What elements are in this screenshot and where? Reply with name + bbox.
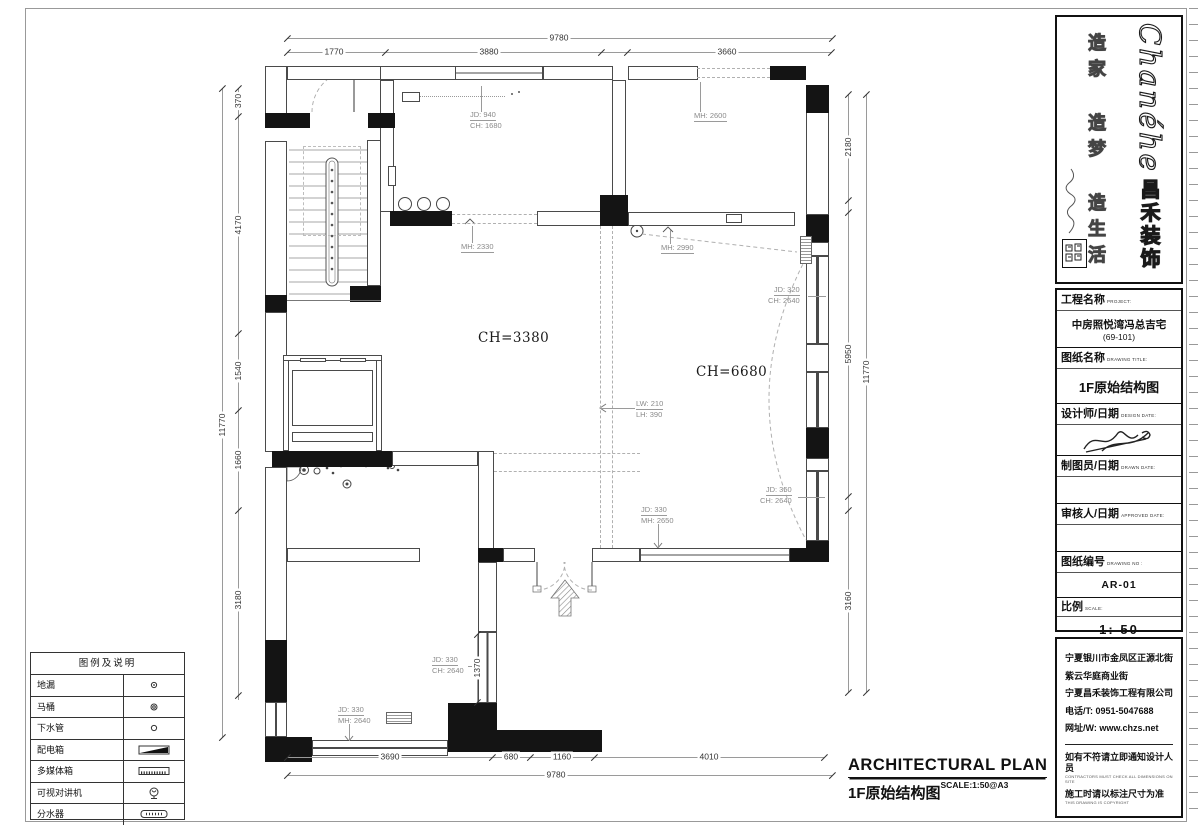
legend-row: 马桶 [31, 697, 184, 719]
titleblock-info: 工程名称PROJECT: 中房照悦湾冯总吉宅 (69-101) 图纸名称DRAW… [1055, 288, 1183, 632]
wall-segment [388, 166, 396, 186]
field-label: 工程名称 [1061, 294, 1105, 306]
power-box-icon [124, 743, 184, 757]
entry-arrow-icon [551, 580, 579, 616]
dim-label: 1540 [233, 360, 243, 383]
dim-label: 3160 [843, 590, 853, 613]
wall-segment [806, 344, 829, 372]
legend-row: 配电箱 [31, 740, 184, 762]
dim-line [287, 52, 832, 53]
callout-jd940: JD: 940CH: 1680 [470, 110, 502, 131]
field-sublabel: DRAWN DATE: [1121, 465, 1155, 470]
wall-segment [340, 358, 366, 362]
drawing-footer-title: ARCHITECTURAL PLAN 1F原始结构图SCALE:1:50@A3 [848, 756, 1047, 803]
wall-segment [592, 548, 640, 562]
field-sublabel: DRAWING TITLE: [1107, 357, 1147, 362]
window [806, 471, 829, 541]
leader-line [472, 226, 473, 243]
wall-segment [380, 66, 456, 80]
window [640, 548, 790, 562]
wall-segment [537, 211, 601, 226]
dim-label: 370 [233, 92, 243, 110]
dim-label: 3660 [716, 47, 739, 57]
legend-row: 下水管 [31, 718, 184, 740]
company-name: 宁夏昌禾装饰工程有限公司 [1065, 685, 1173, 703]
legend-table: 图例及说明 地漏 马桶 下水管 配电箱 多媒体箱 可视对讲 [30, 652, 185, 820]
wall-black [272, 451, 392, 467]
field-scale: 比例SCALE: 1: 50 [1057, 598, 1181, 641]
dim-label: 11770 [217, 411, 227, 438]
company-panel: 宁夏银川市金凤区正源北街 紫云华庭商业街 宁夏昌禾装饰工程有限公司 电话/T: … [1055, 637, 1183, 818]
dim-label: 680 [502, 752, 520, 762]
wall-black [368, 113, 395, 128]
drawing-title-value: 1F原始结构图 [1057, 369, 1181, 403]
wall-segment [392, 451, 478, 466]
wall-segment [265, 141, 287, 296]
dim-label: 5950 [843, 343, 853, 366]
toilet-icon [124, 700, 184, 714]
field-sublabel: DESIGN DATE: [1121, 413, 1156, 418]
brand-slogan: 造家 造梦 造生活 [1083, 33, 1109, 271]
wall-black [265, 113, 310, 128]
wall-segment [612, 80, 626, 196]
wall-black [265, 737, 312, 762]
field-designer: 设计师/日期DESIGN DATE: [1057, 404, 1181, 456]
field-label: 制图员/日期 [1061, 460, 1119, 472]
wall-segment [478, 562, 497, 632]
note1-en: CONTRACTORS MUST CHECK ALL DIMENSIONS ON… [1065, 775, 1173, 784]
wall-black [265, 640, 287, 702]
window [455, 66, 543, 80]
dim-label: 11770 [861, 358, 871, 385]
leader-line [481, 86, 482, 112]
legend-label: 地漏 [31, 675, 124, 696]
divider [1065, 744, 1173, 745]
wall-black [806, 85, 829, 113]
window [806, 372, 829, 428]
wall-black [806, 428, 829, 458]
legend-label: 马桶 [31, 697, 124, 718]
field-label: 设计师/日期 [1061, 408, 1119, 420]
dim-label: 2180 [843, 136, 853, 159]
hatched-box [800, 236, 812, 264]
callout-mh2600: MH: 2600 [694, 111, 727, 122]
dim-label: 1370 [472, 657, 482, 680]
note1: 如有不符请立即通知设计人员 [1065, 752, 1173, 775]
wall-segment [628, 66, 698, 80]
stair-dashed-outline [303, 146, 361, 236]
leader-line [700, 82, 701, 112]
leader-line [349, 724, 350, 741]
dashed-line [600, 226, 601, 548]
dim-label: 4170 [233, 214, 243, 237]
leader-line [808, 296, 826, 297]
dashed-line [494, 471, 640, 472]
field-drafter: 制图员/日期DRAWN DATE: [1057, 456, 1181, 504]
callout-jd330-mh2640: JD: 330MH: 2640 [338, 705, 371, 726]
wall-segment [287, 66, 382, 80]
wall-black [600, 195, 628, 226]
wall-black [448, 703, 497, 733]
wall-segment [265, 467, 287, 641]
drawing-number: AR-01 [1057, 573, 1181, 597]
callout-jd350: JD: 350CH: 2640 [760, 485, 792, 506]
dashed-line [452, 223, 537, 224]
wall-segment [380, 80, 394, 212]
dashed-line [452, 214, 537, 215]
field-sublabel: SCALE: [1085, 606, 1103, 611]
dim-label: 9780 [545, 770, 568, 780]
water-manifold-icon [124, 807, 184, 821]
legend-label: 可视对讲机 [31, 783, 124, 804]
dashed-line [697, 77, 770, 78]
dim-label: 1160 [551, 752, 573, 762]
wall-black [790, 548, 829, 562]
brand-logo-cn: 昌禾装饰 [1134, 179, 1163, 271]
callout-jd320: JD: 320CH: 2640 [768, 285, 800, 306]
legend-row: 可视对讲机 [31, 783, 184, 805]
calligraphy-flourish [1061, 167, 1081, 237]
window [806, 256, 829, 344]
leader-line [670, 230, 671, 244]
legend-title: 图例及说明 [31, 653, 184, 675]
leader-line [798, 497, 825, 498]
field-label: 审核人/日期 [1061, 508, 1119, 520]
wall-segment [726, 214, 742, 223]
company-address1: 宁夏银川市金凤区正源北街 [1065, 650, 1173, 668]
wall-segment [806, 112, 829, 215]
note2-en: THIS DRAWING IS COPYRIGHT [1065, 801, 1173, 805]
wall-segment [300, 358, 326, 362]
wall-black [265, 295, 287, 312]
legend-row: 分水器 [31, 804, 184, 825]
wall-black [390, 211, 452, 226]
wall-segment [402, 92, 420, 102]
field-approver: 审核人/日期APPROVED DATE: [1057, 504, 1181, 552]
legend-row: 地漏 [31, 675, 184, 697]
dim-label: 1660 [233, 449, 243, 472]
field-sublabel: PROJECT: [1107, 299, 1131, 304]
wall-black [770, 66, 806, 80]
drain-pipe-icon [124, 721, 184, 735]
field-sublabel: APPROVED DATE: [1121, 513, 1164, 518]
dim-label: 3880 [478, 47, 501, 57]
dim-label: 1770 [323, 47, 346, 57]
wall-segment [543, 66, 613, 80]
room-label-living: CH=3380 [478, 330, 549, 346]
callout-mh2990: MH: 2990 [661, 243, 694, 254]
dashed-line [612, 226, 613, 548]
field-drawing-no: 图纸编号DRAWING NO : AR-01 [1057, 552, 1181, 598]
wall-segment [806, 458, 829, 471]
dashed-line [697, 68, 770, 69]
footer-title-cn: 1F原始结构图 [848, 785, 941, 802]
brand-panel: Chanéhe 昌禾装饰 造家 造梦 造生活 [1055, 15, 1183, 284]
wall-segment [478, 451, 494, 551]
wall-segment [503, 548, 535, 562]
main-entry-doors [533, 562, 596, 616]
dim-label: 9780 [548, 33, 571, 43]
wall-segment [376, 355, 382, 451]
wall-segment [367, 140, 381, 286]
wall-segment [292, 432, 373, 442]
company-seal [1062, 239, 1087, 268]
leader-line [658, 524, 659, 548]
footer-title-en: ARCHITECTURAL PLAN [848, 756, 1047, 778]
callout-lw210: LW: 210LH: 390 [636, 399, 663, 420]
wall-segment [283, 355, 289, 451]
field-drawing-title: 图纸名称DRAWING TITLE: 1F原始结构图 [1057, 348, 1181, 404]
legend-label: 配电箱 [31, 740, 124, 761]
legend-label: 分水器 [31, 804, 124, 825]
company-phone: 电话/T: 0951-5047688 [1065, 703, 1173, 721]
dim-line [866, 94, 867, 692]
wall-black [478, 548, 503, 562]
dim-label: 3180 [233, 589, 243, 612]
field-label: 比例 [1061, 601, 1083, 613]
room-label-hall: CH=6680 [696, 364, 767, 380]
floor-line [287, 300, 381, 301]
project-number: (69-101) [1103, 332, 1135, 342]
video-intercom-icon [124, 786, 184, 800]
callout-mh2330: MH: 2330 [461, 242, 494, 253]
dashed-line [494, 453, 640, 454]
drawing-sheet: CH=3380 CH=6680 ELEVATOR JD: 940CH: 1680… [0, 0, 1200, 833]
brand-logo-en: Chanéhe [1133, 23, 1167, 174]
wall-segment [292, 370, 373, 426]
leader-arrowheads [345, 292, 826, 741]
field-sublabel: DRAWING NO : [1107, 561, 1143, 566]
multimedia-box-icon [124, 764, 184, 778]
dim-label: 4010 [698, 752, 721, 762]
legend-row: 多媒体箱 [31, 761, 184, 783]
window [265, 702, 287, 737]
designer-signature [1074, 425, 1164, 455]
note2: 施工时请以标注尺寸为准 [1065, 789, 1173, 801]
company-web: 网址/W: www.chzs.net [1065, 720, 1173, 738]
field-project: 工程名称PROJECT: 中房照悦湾冯总吉宅 (69-101) [1057, 290, 1181, 348]
wall-segment [287, 548, 420, 562]
company-address2: 紫云华庭商业街 [1065, 668, 1173, 686]
footer-scale-note: SCALE:1:50@A3 [941, 780, 1009, 790]
field-label: 图纸名称 [1061, 352, 1105, 364]
floor-drain-icon [124, 678, 184, 692]
wall-segment [265, 66, 287, 114]
project-name: 中房照悦湾冯总吉宅 [1072, 317, 1167, 332]
wall-black [448, 730, 602, 752]
kitchen-symbols [399, 91, 521, 224]
dotted-gas-line [420, 96, 505, 97]
legend-label: 多媒体箱 [31, 761, 124, 782]
dim-label: 3690 [379, 752, 402, 762]
legend-label: 下水管 [31, 718, 124, 739]
binding-edge [1189, 8, 1198, 820]
wall-segment [628, 212, 795, 226]
field-label: 图纸编号 [1061, 556, 1105, 568]
callout-jd330-ch2640: JD: 330CH: 2640 [432, 655, 464, 676]
hatched-box [386, 712, 412, 724]
leader-line [600, 408, 635, 409]
wall-segment [283, 355, 382, 361]
